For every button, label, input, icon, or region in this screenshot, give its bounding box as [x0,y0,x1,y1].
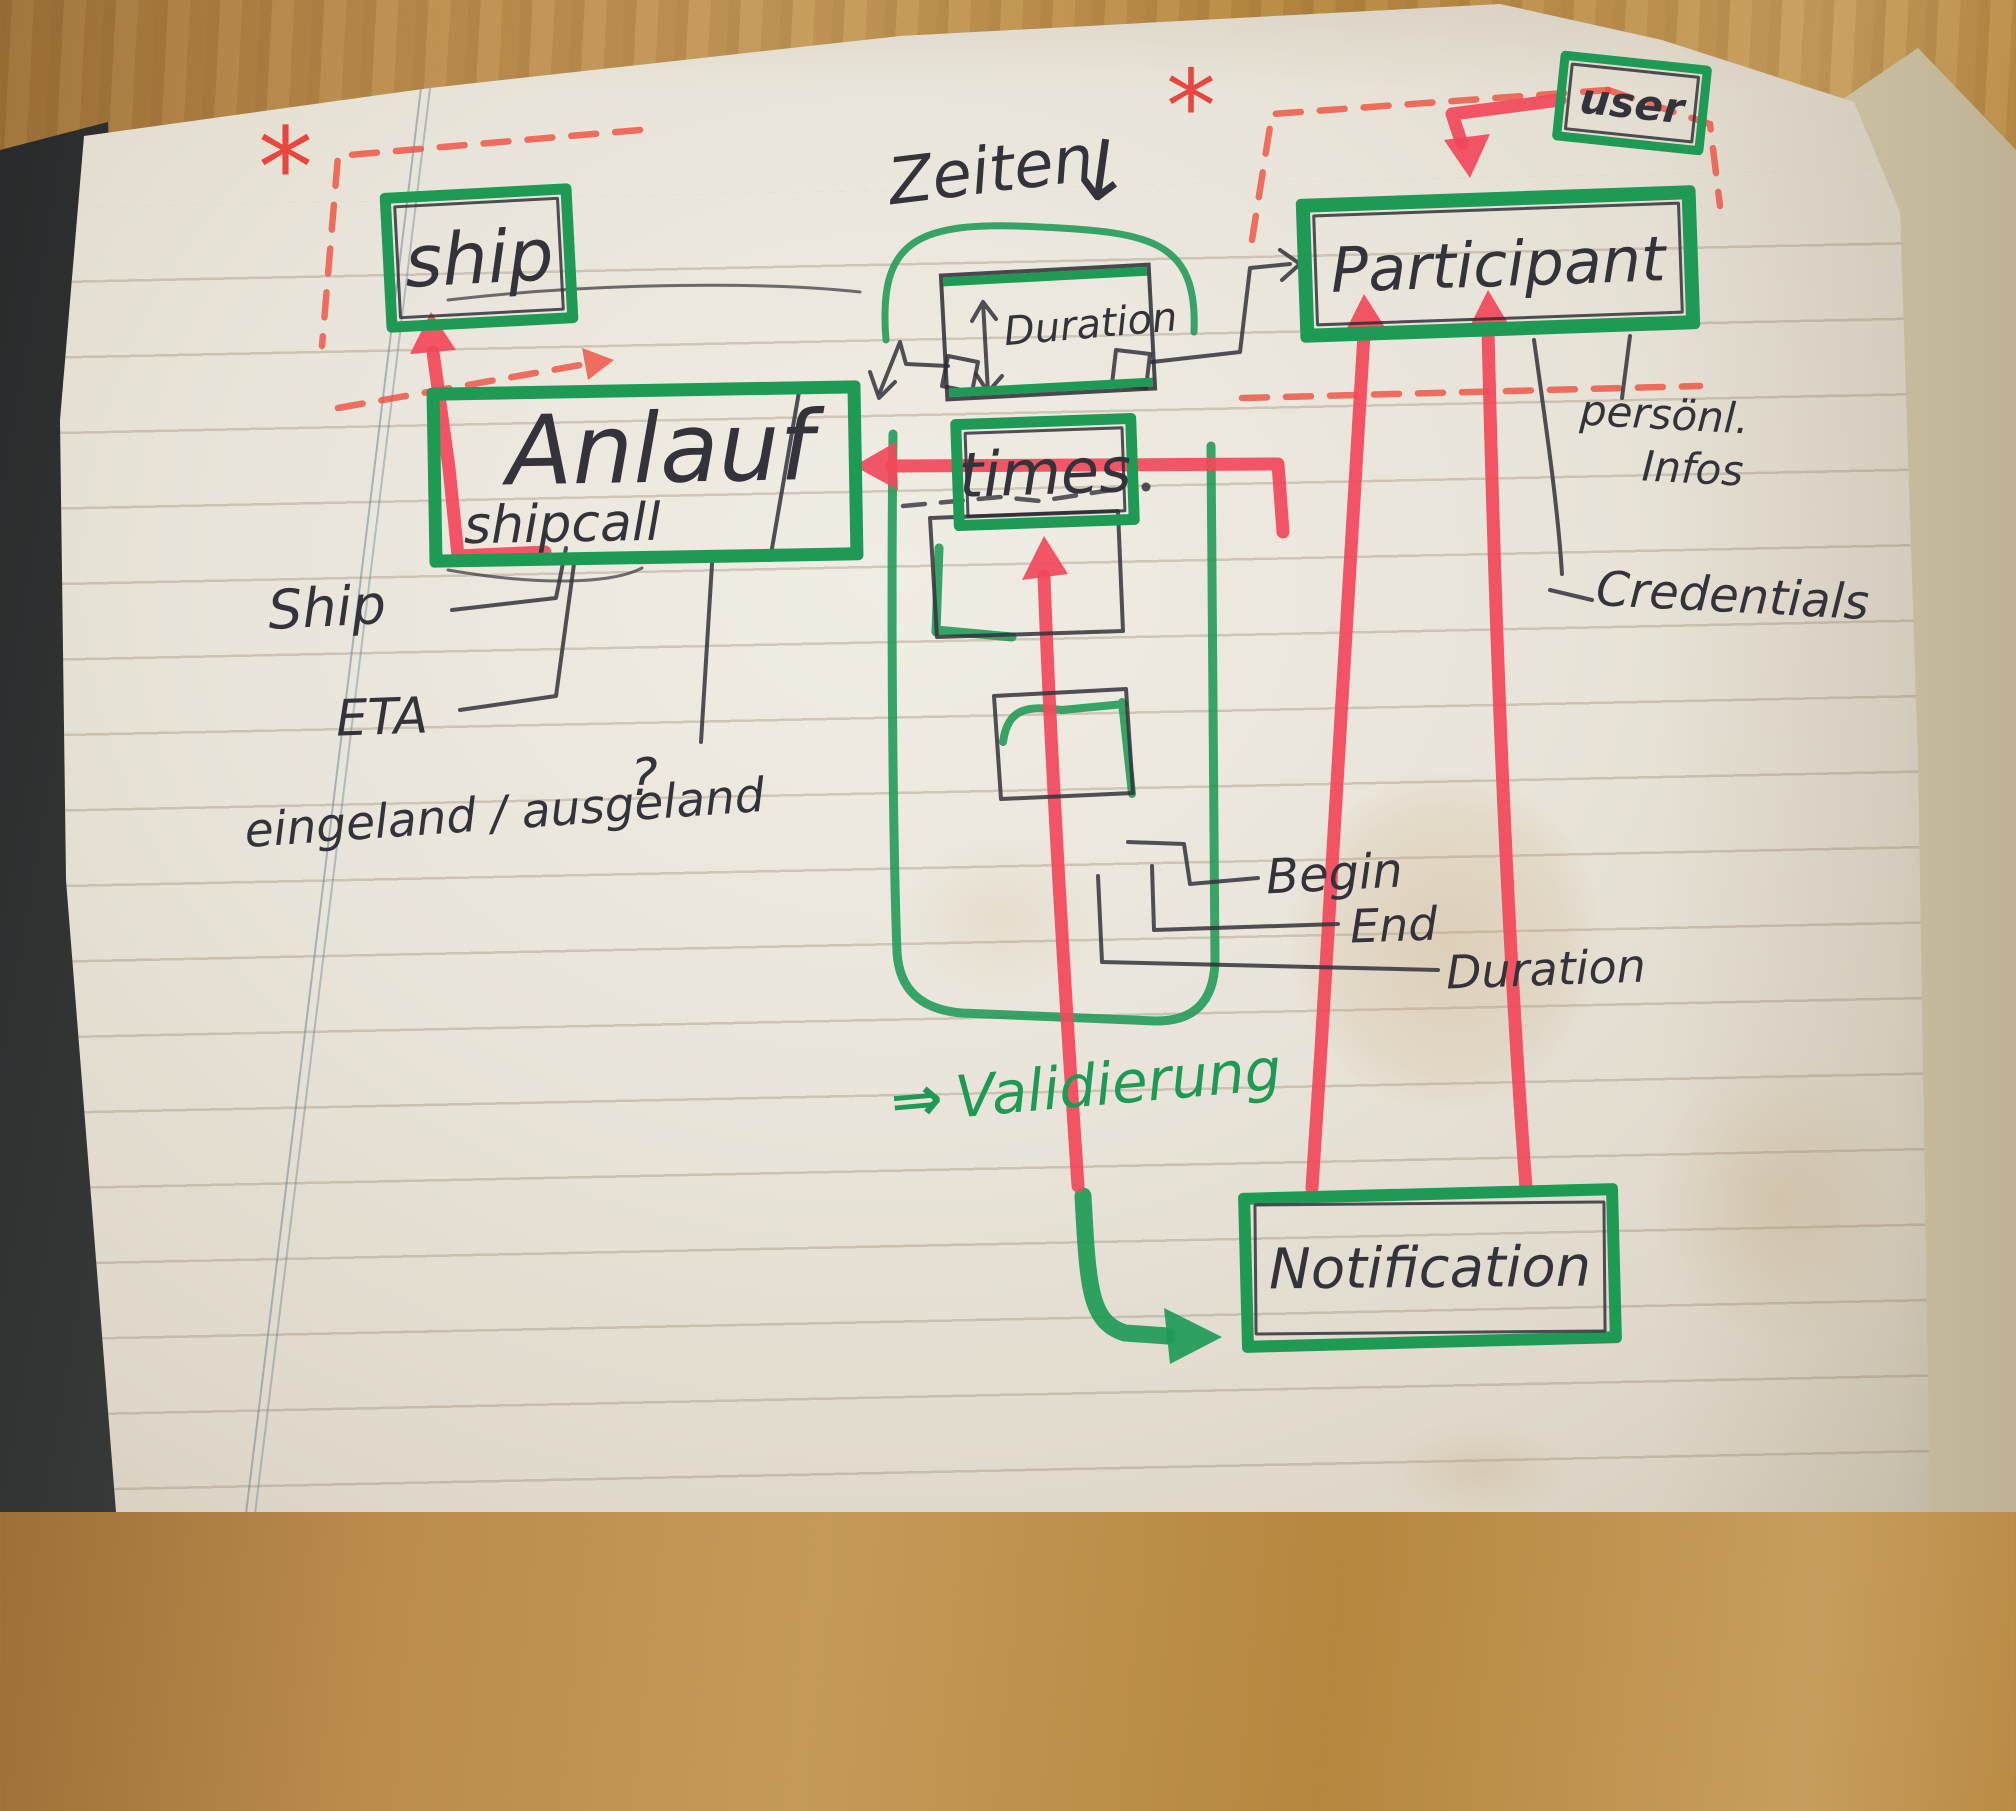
entity-anlauf: Anlauf shipcall [426,380,863,568]
attr-ship: Ship [266,573,387,642]
entity-participant: Participant [1296,185,1701,343]
asterisk-right: * [1166,48,1216,165]
validierung-arrow-icon: ⇒ [888,1061,946,1138]
entity-notification-label: Notification [1269,1234,1592,1302]
zeiten-down-arrow-icon: ↓ [1060,118,1143,225]
entity-anlauf-sublabel: shipcall [463,493,661,556]
coffee-stain [1650,1050,1910,1350]
attr-question-mark: ? [630,748,658,808]
entity-times-label: times [958,433,1133,512]
attr-persoenl-1: persönl. [1579,386,1750,444]
entity-duration-label: Duration [1002,294,1179,355]
coffee-stain [896,832,1106,1002]
entity-times: times [950,413,1140,531]
notebook-photo: ship Anlauf shipcall Duration times Part… [0,0,2016,1512]
attr-begin: Begin [1265,842,1404,905]
entity-ship-label: ship [402,212,555,304]
entity-duration: Duration [939,263,1157,402]
attr-end: End [1349,896,1438,953]
coffee-stain [1290,770,1600,1110]
entity-anlauf-label: Anlauf [506,390,815,507]
asterisk-left: * [258,104,313,232]
coffee-stain [1380,1420,1580,1520]
entity-notification: Notification [1238,1183,1622,1353]
attr-persoenl-2: Infos [1641,441,1745,495]
entity-user-label: user [1578,73,1687,133]
entity-ship: ship [379,183,578,333]
attr-eta: ETA [335,686,429,747]
entity-user: user [1552,50,1713,155]
entity-participant-label: Participant [1329,222,1666,307]
attr-duration: Duration [1445,939,1647,1000]
